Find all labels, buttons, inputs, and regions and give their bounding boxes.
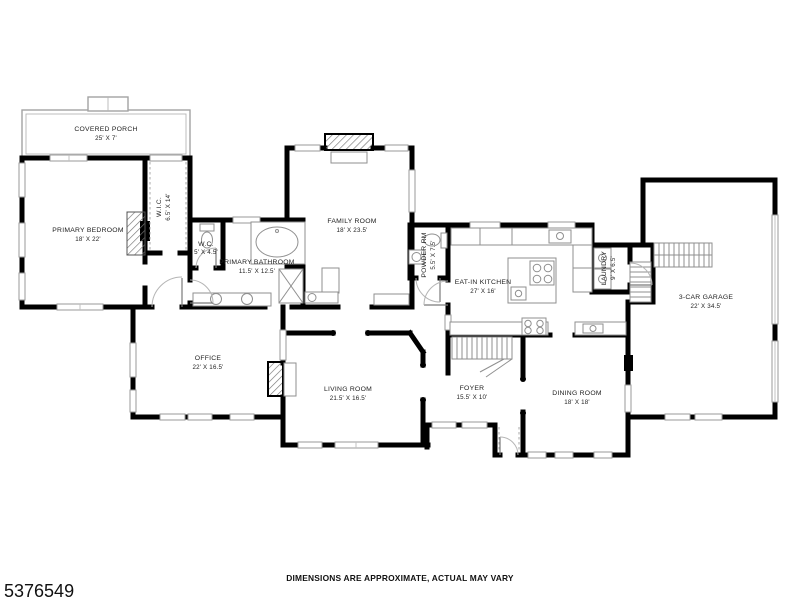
room-label-family-room: FAMILY ROOM 18' X 23.5' bbox=[327, 218, 376, 234]
svg-text:W.C.: W.C. bbox=[198, 241, 214, 248]
svg-text:18' X 22': 18' X 22' bbox=[75, 236, 101, 243]
svg-text:18' X 18': 18' X 18' bbox=[564, 399, 590, 406]
room-label-primary-bedroom: PRIMARY BEDROOM 18' X 22' bbox=[52, 227, 124, 243]
svg-text:5.5' X 7.5': 5.5' X 7.5' bbox=[430, 240, 437, 269]
svg-text:LAUNDRY: LAUNDRY bbox=[601, 251, 608, 285]
svg-text:DINING ROOM: DINING ROOM bbox=[552, 390, 602, 397]
svg-text:OFFICE: OFFICE bbox=[195, 355, 222, 362]
svg-text:W.I.C.: W.I.C. bbox=[156, 197, 163, 217]
room-label-office: OFFICE 22' X 16.5' bbox=[192, 355, 223, 371]
svg-text:LIVING ROOM: LIVING ROOM bbox=[324, 386, 372, 393]
bathtub-icon bbox=[251, 222, 305, 264]
svg-text:21.5' X 16.5': 21.5' X 16.5' bbox=[330, 395, 367, 402]
room-label-eat-in-kitchen: EAT-IN KITCHEN 27' X 16' bbox=[455, 279, 512, 295]
bathroom-double-vanity-icon bbox=[193, 293, 271, 306]
room-label-wic: W.I.C. 6.5' X 14' bbox=[156, 193, 172, 220]
kitchen-island-icon bbox=[508, 258, 556, 303]
svg-text:6.5' X 14': 6.5' X 14' bbox=[165, 193, 172, 220]
room-label-wc: W.C. 5' X 4.5' bbox=[194, 241, 218, 256]
svg-text:PRIMARY BEDROOM: PRIMARY BEDROOM bbox=[52, 227, 124, 234]
svg-text:3-CAR GARAGE: 3-CAR GARAGE bbox=[679, 294, 734, 301]
family-room-fireplace-icon bbox=[325, 134, 373, 163]
svg-text:COVERED PORCH: COVERED PORCH bbox=[74, 126, 137, 133]
foyer-staircase bbox=[452, 337, 512, 377]
room-label-garage: 3-CAR GARAGE 22' X 34.5' bbox=[679, 294, 734, 310]
svg-text:22' X 16.5': 22' X 16.5' bbox=[192, 364, 223, 371]
disclaimer-text: DIMENSIONS ARE APPROXIMATE, ACTUAL MAY V… bbox=[286, 573, 514, 583]
svg-text:POWDER RM: POWDER RM bbox=[421, 232, 428, 277]
svg-text:15.5' X 10': 15.5' X 10' bbox=[456, 394, 487, 401]
room-label-living-room: LIVING ROOM 21.5' X 16.5' bbox=[324, 386, 372, 402]
office-fireplace-icon bbox=[268, 362, 296, 396]
svg-text:EAT-IN KITCHEN: EAT-IN KITCHEN bbox=[455, 279, 512, 286]
family-room-wetbar-icon bbox=[305, 268, 409, 305]
powder-room-fixtures bbox=[409, 233, 447, 264]
svg-text:18' X 23.5': 18' X 23.5' bbox=[336, 227, 367, 234]
garage-entry-door bbox=[624, 355, 633, 371]
svg-text:PRIMARY BATHROOM: PRIMARY BATHROOM bbox=[219, 259, 294, 266]
svg-text:FOYER: FOYER bbox=[460, 385, 485, 392]
shower-icon bbox=[279, 269, 303, 303]
svg-text:25' X 7': 25' X 7' bbox=[95, 135, 117, 142]
svg-text:9' X 6.5': 9' X 6.5' bbox=[610, 256, 617, 280]
floor-plan-page: COVERED PORCH 25' X 7' PRIMARY BEDROOM 1… bbox=[0, 0, 800, 600]
svg-text:11.5' X 12.5': 11.5' X 12.5' bbox=[239, 268, 275, 275]
room-label-dining-room: DINING ROOM 18' X 18' bbox=[552, 390, 602, 406]
room-label-foyer: FOYER 15.5' X 10' bbox=[456, 385, 487, 401]
svg-text:FAMILY ROOM: FAMILY ROOM bbox=[327, 218, 376, 225]
svg-text:22' X 34.5': 22' X 34.5' bbox=[690, 303, 721, 310]
svg-text:5' X 4.5': 5' X 4.5' bbox=[194, 249, 218, 256]
cased-opening bbox=[280, 330, 286, 360]
floor-plan-drawing: COVERED PORCH 25' X 7' PRIMARY BEDROOM 1… bbox=[0, 0, 800, 600]
svg-text:27' X 16': 27' X 16' bbox=[470, 288, 496, 295]
listing-id: 5376549 bbox=[4, 581, 74, 600]
